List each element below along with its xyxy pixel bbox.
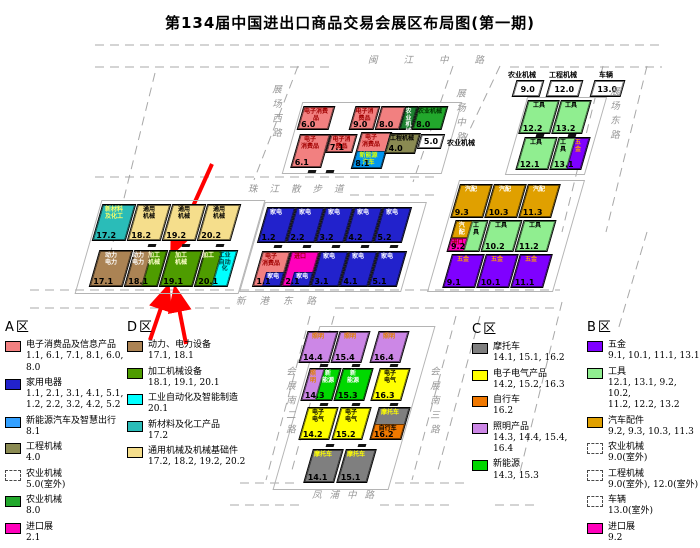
legend-item-name: 新材料及化工产品 (148, 420, 220, 431)
legend-swatch (587, 443, 603, 454)
hall-number: 8.0 (379, 120, 393, 129)
hall-connector (274, 245, 283, 248)
legend-item-text: 工程机械9.0(室外), 12.0(室外) (608, 469, 698, 492)
hall-connector (308, 170, 317, 173)
legend-item: 动力、电力设备17.1, 18.1 (127, 340, 302, 363)
hall-section-label: 五 金 (575, 139, 581, 168)
hall-section-label: 加工 机械 (148, 252, 160, 285)
legend-zone-b: B区五金9.1, 10.1, 11.1, 13.1工具12.1, 13.1, 9… (587, 316, 700, 548)
hall-number: 2.1 (285, 277, 299, 286)
legend-item: 照明产品14.3, 14.4, 15.4, 16.4 (472, 422, 584, 456)
legend-item-name: 通用机械及机械基础件 (148, 446, 245, 457)
legend-item-name: 农业机械 (26, 469, 65, 480)
hall-number: 15.2 (336, 430, 356, 439)
legend-swatch (472, 460, 488, 471)
legend-item-text: 通用机械及机械基础件17.2, 18.2, 19.2, 20.2 (148, 446, 245, 469)
hall-number: 9.1 (447, 278, 461, 287)
hall-number: 15.4 (335, 353, 355, 362)
hall-number: 2.2 (290, 233, 304, 242)
hall-connector (390, 403, 399, 406)
hall-number: 16.4 (374, 353, 394, 362)
legend-item-text: 新材料及化工产品17.2 (148, 420, 220, 443)
hall-connector (358, 444, 367, 447)
legend-swatch (5, 417, 21, 428)
legend-item: 新能源汽车及智慧出行8.1 (5, 416, 125, 439)
hall-number: 16.3 (375, 391, 395, 400)
legend-swatch (127, 421, 143, 432)
hall-6-0: 电子消费品6.0 (297, 106, 336, 130)
hall-number: 6.1 (295, 158, 309, 167)
legend-item: 五金9.1, 10.1, 11.1, 13.1 (587, 340, 700, 363)
outdoor-label-eng-12-0: 工程机械 (549, 70, 577, 80)
legend-item: 进口展2.1 (5, 522, 125, 545)
legend-item: 工业自动化及智能制造20.1 (127, 393, 302, 416)
hall-connector (320, 403, 329, 406)
hall-number: 5.1 (372, 277, 386, 286)
legend-swatch (472, 343, 488, 354)
legend-item-text: 新能源14.3, 15.3 (493, 459, 539, 482)
legend-item-name: 工程机械 (608, 469, 698, 480)
outdoor-label-agri-5-0: 农业机械 (447, 138, 475, 148)
legend-zone-title: B区 (587, 316, 700, 335)
hall-number: 11.3 (523, 208, 543, 217)
hall-number: 4.0 (389, 144, 403, 153)
hall-number: 19.1 (163, 277, 183, 286)
legend-item-text: 摩托车14.1, 15.1, 16.2 (493, 342, 565, 365)
hall-5-0: 5.0 (417, 134, 445, 149)
legend-item-text: 农业机械5.0(室外) (26, 469, 65, 492)
legend-item-text: 农业机械9.0(室外) (608, 442, 647, 465)
hall-section-label: 工 具 (473, 222, 479, 250)
legend-item-halls: 17.2, 18.2, 19.2, 20.2 (148, 457, 245, 468)
hall-connector (326, 444, 335, 447)
legend-item-name: 工程机械 (26, 442, 62, 453)
road-huizhan-south-3: 会展南三路 (426, 366, 440, 439)
hall-12-0: 12.0 (546, 80, 584, 97)
legend-item-halls: 9.2, 9.3, 10.3, 11.3 (608, 427, 694, 438)
road-fengpu-middle: 凤浦中路 (312, 487, 382, 501)
hall-connector (352, 364, 361, 367)
hall-number: 15.1 (341, 473, 361, 482)
legend-item-name: 新能源 (493, 459, 539, 470)
hall-number: 1.2 (261, 233, 275, 242)
hall-number: 8.0 (416, 120, 430, 129)
legend-item-name: 照明产品 (493, 422, 584, 433)
hall-number: 13.2 (556, 124, 576, 133)
legend-item-halls: 1.1, 6.1, 7.1, 8.1, 6.0, 8.0 (26, 351, 125, 374)
legend-item: 农业机械8.0 (5, 495, 125, 518)
legend-zone-title: C区 (472, 318, 584, 337)
legend-item: 新材料及化工产品17.2 (127, 420, 302, 443)
hall-number: 19.2 (166, 231, 186, 240)
legend-swatch (587, 341, 603, 352)
hall-connector (216, 244, 225, 247)
hall-number: 5.2 (377, 233, 391, 242)
hall-connector (390, 245, 399, 248)
legend-item-text: 车辆13.0(室外) (608, 495, 653, 518)
legend-item-text: 自行车16.2 (493, 395, 520, 418)
legend-item-name: 进口展 (26, 522, 53, 533)
legend-item-text: 进口展9.2 (608, 522, 635, 545)
hall-connector (361, 245, 370, 248)
legend-item-name: 电子消费品及信息产品 (26, 340, 125, 351)
legend-swatch (5, 496, 21, 507)
legend-item: 摩托车14.1, 15.1, 16.2 (472, 342, 584, 365)
legend-item-text: 照明产品14.3, 14.4, 15.4, 16.4 (493, 422, 584, 456)
legend-item-name: 车辆 (608, 495, 653, 506)
hall-number: 9.0 (515, 85, 541, 94)
legend-swatch (5, 443, 21, 454)
legend-item-text: 动力、电力设备17.1, 18.1 (148, 340, 211, 363)
hall-number: 14.1 (308, 473, 328, 482)
legend-item-halls: 14.1, 15.1, 16.2 (493, 353, 565, 364)
legend-item-halls: 8.1 (26, 427, 116, 438)
hall-number: 20.2 (201, 231, 221, 240)
legend-item: 自行车16.2 (472, 395, 584, 418)
legend-item-text: 电子电气产品14.2, 15.2, 16.3 (493, 369, 565, 392)
legend-item: 车辆13.0(室外) (587, 495, 700, 518)
legend-item-text: 汽车配件9.2, 9.3, 10.3, 11.3 (608, 416, 694, 439)
legend-item-halls: 9.2 (608, 533, 635, 544)
legend-item-text: 工程机械4.0 (26, 442, 62, 465)
legend-swatch (587, 368, 603, 379)
legend-item: 加工机械设备18.1, 19.1, 20.1 (127, 367, 302, 390)
legend-swatch (587, 417, 603, 428)
hall-number: 13.1 (554, 160, 574, 169)
road-xingang-east: 新港东路 (236, 293, 330, 307)
hall-number: 10.1 (481, 278, 501, 287)
road-zhanchang-east: 展场东路 (606, 86, 620, 144)
hall-section-label: 汽 配 (459, 222, 465, 237)
legend-zone-title: D区 (127, 316, 302, 335)
legend-swatch (127, 447, 143, 458)
hall-section-label: 工业 自动化 (218, 252, 231, 285)
hall-number: 9.2 (451, 242, 465, 251)
legend-swatch (127, 341, 143, 352)
legend-item-text: 加工机械设备18.1, 19.1, 20.1 (148, 367, 220, 390)
legend-item-halls: 4.0 (26, 453, 62, 464)
legend-item-name: 进口展 (608, 522, 635, 533)
legend-item-text: 进口展2.1 (26, 522, 53, 545)
hall-number: 12.1 (520, 160, 540, 169)
legend-item: 工程机械4.0 (5, 442, 125, 465)
hall-number: 4.2 (348, 233, 362, 242)
hall-number: 11.2 (519, 242, 539, 251)
hall-connector (332, 245, 341, 248)
hall-number: 14.3 (305, 391, 325, 400)
legend-item-name: 农业机械 (26, 495, 62, 506)
hall-7-1: 电子消费品7.1 (325, 134, 357, 153)
hall-9-0: 9.0 (512, 80, 545, 97)
legend-item-name: 摩托车 (493, 342, 565, 353)
legend-item-halls: 14.2, 15.2, 16.3 (493, 380, 565, 391)
hall-number: 18.2 (131, 231, 151, 240)
hall-number: 11.1 (515, 278, 535, 287)
legend-item-text: 新能源汽车及智慧出行8.1 (26, 416, 116, 439)
legend-item: 新能源14.3, 15.3 (472, 459, 584, 482)
hall-number: 4.1 (343, 277, 357, 286)
hall-number: 8.1 (355, 159, 369, 168)
legend-zone-c: C区摩托车14.1, 15.1, 16.2电子电气产品14.2, 15.2, 1… (472, 318, 584, 486)
outdoor-label-agri-9-0: 农业机械 (508, 70, 536, 80)
legend-swatch (5, 341, 21, 352)
legend-item: 工程机械9.0(室外), 12.0(室外) (587, 469, 700, 492)
road-minjiang-middle: 闽江中路 (368, 52, 510, 66)
legend-item-halls: 14.3, 14.4, 15.4, 16.4 (493, 433, 584, 456)
hall-connector (148, 244, 157, 247)
hall-number: 9.0 (353, 120, 367, 129)
legend-item: 工具12.1, 13.1, 9.2, 10.2, 11.2, 12.2, 13.… (587, 367, 700, 412)
legend-swatch (587, 470, 603, 481)
legend-swatch (127, 368, 143, 379)
hall-connector (326, 170, 335, 173)
legend-item-name: 农业机械 (608, 442, 647, 453)
hall-4-0: 工程机械4.0 (384, 133, 421, 154)
legend-item-halls: 16.2 (493, 406, 520, 417)
legend-item: 汽车配件9.2, 9.3, 10.3, 11.3 (587, 416, 700, 439)
legend-swatch (5, 379, 21, 390)
hall-number: 17.1 (93, 277, 113, 286)
legend-item: 电子电气产品14.2, 15.2, 16.3 (472, 369, 584, 392)
legend-item: 通用机械及机械基础件17.2, 18.2, 19.2, 20.2 (127, 446, 302, 469)
legend-item-name: 五金 (608, 340, 700, 351)
legend-item: 农业机械5.0(室外) (5, 469, 125, 492)
legend-item-halls: 2.1 (26, 533, 53, 544)
outdoor-label-vehicle-13-0: 车辆 (599, 70, 613, 80)
hall-section-label: 农业 机械 (404, 108, 413, 128)
legend-swatch (472, 370, 488, 381)
legend-item-name: 工具 (608, 367, 700, 378)
legend-item: 家用电器1.1, 2.1, 3.1, 4.1, 5.1, 1.2, 2.2, 3… (5, 378, 125, 412)
legend-item-halls: 8.0 (26, 506, 62, 517)
legend-swatch (472, 423, 488, 434)
legend-item-name: 汽车配件 (608, 416, 694, 427)
legend-item-text: 五金9.1, 10.1, 11.1, 13.1 (608, 340, 700, 363)
hall-number: 3.2 (319, 233, 333, 242)
hall-connector (182, 244, 191, 247)
hall-connector (352, 403, 361, 406)
hall-number: 18.1 (128, 277, 148, 286)
legend-item-halls: 5.0(室外) (26, 480, 65, 491)
legend-item-halls: 17.1, 18.1 (148, 351, 211, 362)
hall-number: 15.3 (338, 391, 358, 400)
legend-item-name: 电子电气产品 (493, 369, 565, 380)
hall-number: 12.2 (523, 124, 543, 133)
legend-swatch (127, 394, 143, 405)
hall-number: 5.0 (420, 137, 442, 146)
legend-swatch (472, 396, 488, 407)
legend-item-name: 自行车 (493, 395, 520, 406)
legend-item-halls: 17.2 (148, 431, 220, 442)
legend-item-text: 电子消费品及信息产品1.1, 6.1, 7.1, 8.1, 6.0, 8.0 (26, 340, 125, 374)
road-zhanchang-west: 展场西路 (268, 84, 282, 142)
legend-item-halls: 18.1, 19.1, 20.1 (148, 378, 220, 389)
hall-number: 12.0 (549, 85, 580, 94)
legend-item-name: 加工机械设备 (148, 367, 220, 378)
hall-number: 7.1 (330, 143, 344, 152)
legend-item: 电子消费品及信息产品1.1, 6.1, 7.1, 8.1, 6.0, 8.0 (5, 340, 125, 374)
hall-number: 14.2 (303, 430, 323, 439)
hall-number: 14.4 (303, 353, 323, 362)
legend-item-name: 新能源汽车及智慧出行 (26, 416, 116, 427)
legend-item-halls: 9.0(室外) (608, 453, 647, 464)
hall-number: 16.2 (374, 430, 394, 439)
legend-zone-a: A区电子消费品及信息产品1.1, 6.1, 7.1, 8.1, 6.0, 8.0… (5, 316, 125, 548)
legend-item-halls: 13.0(室外) (608, 506, 653, 517)
legend-swatch (587, 496, 603, 507)
legend-item-name: 家用电器 (26, 378, 123, 389)
hall-number: 17.2 (96, 231, 116, 240)
legend-item-halls: 1.1, 2.1, 3.1, 4.1, 5.1, 1.2, 2.2, 3.2, … (26, 389, 123, 412)
hall-number: 10.3 (489, 208, 509, 217)
legend-item-text: 农业机械8.0 (26, 495, 62, 518)
legend-item-halls: 12.1, 13.1, 9.2, 10.2, 11.2, 12.2, 13.2 (608, 378, 700, 412)
legend-item-text: 工具12.1, 13.1, 9.2, 10.2, 11.2, 12.2, 13.… (608, 367, 700, 412)
road-zhujiang-promenade: 珠江散步道 (248, 181, 356, 195)
legend-item-name: 动力、电力设备 (148, 340, 211, 351)
legend-item-text: 家用电器1.1, 2.1, 3.1, 4.1, 5.1, 1.2, 2.2, 3… (26, 378, 123, 412)
legend-item-halls: 9.1, 10.1, 11.1, 13.1 (608, 351, 700, 362)
hall-number: 1.1 (256, 277, 270, 286)
legend-item-text: 工业自动化及智能制造20.1 (148, 393, 238, 416)
legend-item-halls: 20.1 (148, 404, 238, 415)
legend-item: 农业机械9.0(室外) (587, 442, 700, 465)
legend-item: 进口展9.2 (587, 522, 700, 545)
hall-number: 3.1 (314, 277, 328, 286)
hall-connector (303, 245, 312, 248)
hall-number: 20.1 (198, 277, 218, 286)
hall-number: 6.0 (301, 120, 315, 129)
legend-item-name: 工业自动化及智能制造 (148, 393, 238, 404)
legend-swatch (587, 523, 603, 534)
hall-connector (320, 364, 329, 367)
hall-number: 10.2 (485, 242, 505, 251)
legend-swatch (5, 523, 21, 534)
legend-zone-title: A区 (5, 316, 125, 335)
hall-number: 9.3 (455, 208, 469, 217)
legend-zone-d: D区动力、电力设备17.1, 18.1加工机械设备18.1, 19.1, 20.… (127, 316, 302, 473)
legend-item-halls: 14.3, 15.3 (493, 471, 539, 482)
legend-swatch (5, 470, 21, 481)
legend-item-halls: 9.0(室外), 12.0(室外) (608, 480, 698, 491)
hall-connector (390, 364, 399, 367)
